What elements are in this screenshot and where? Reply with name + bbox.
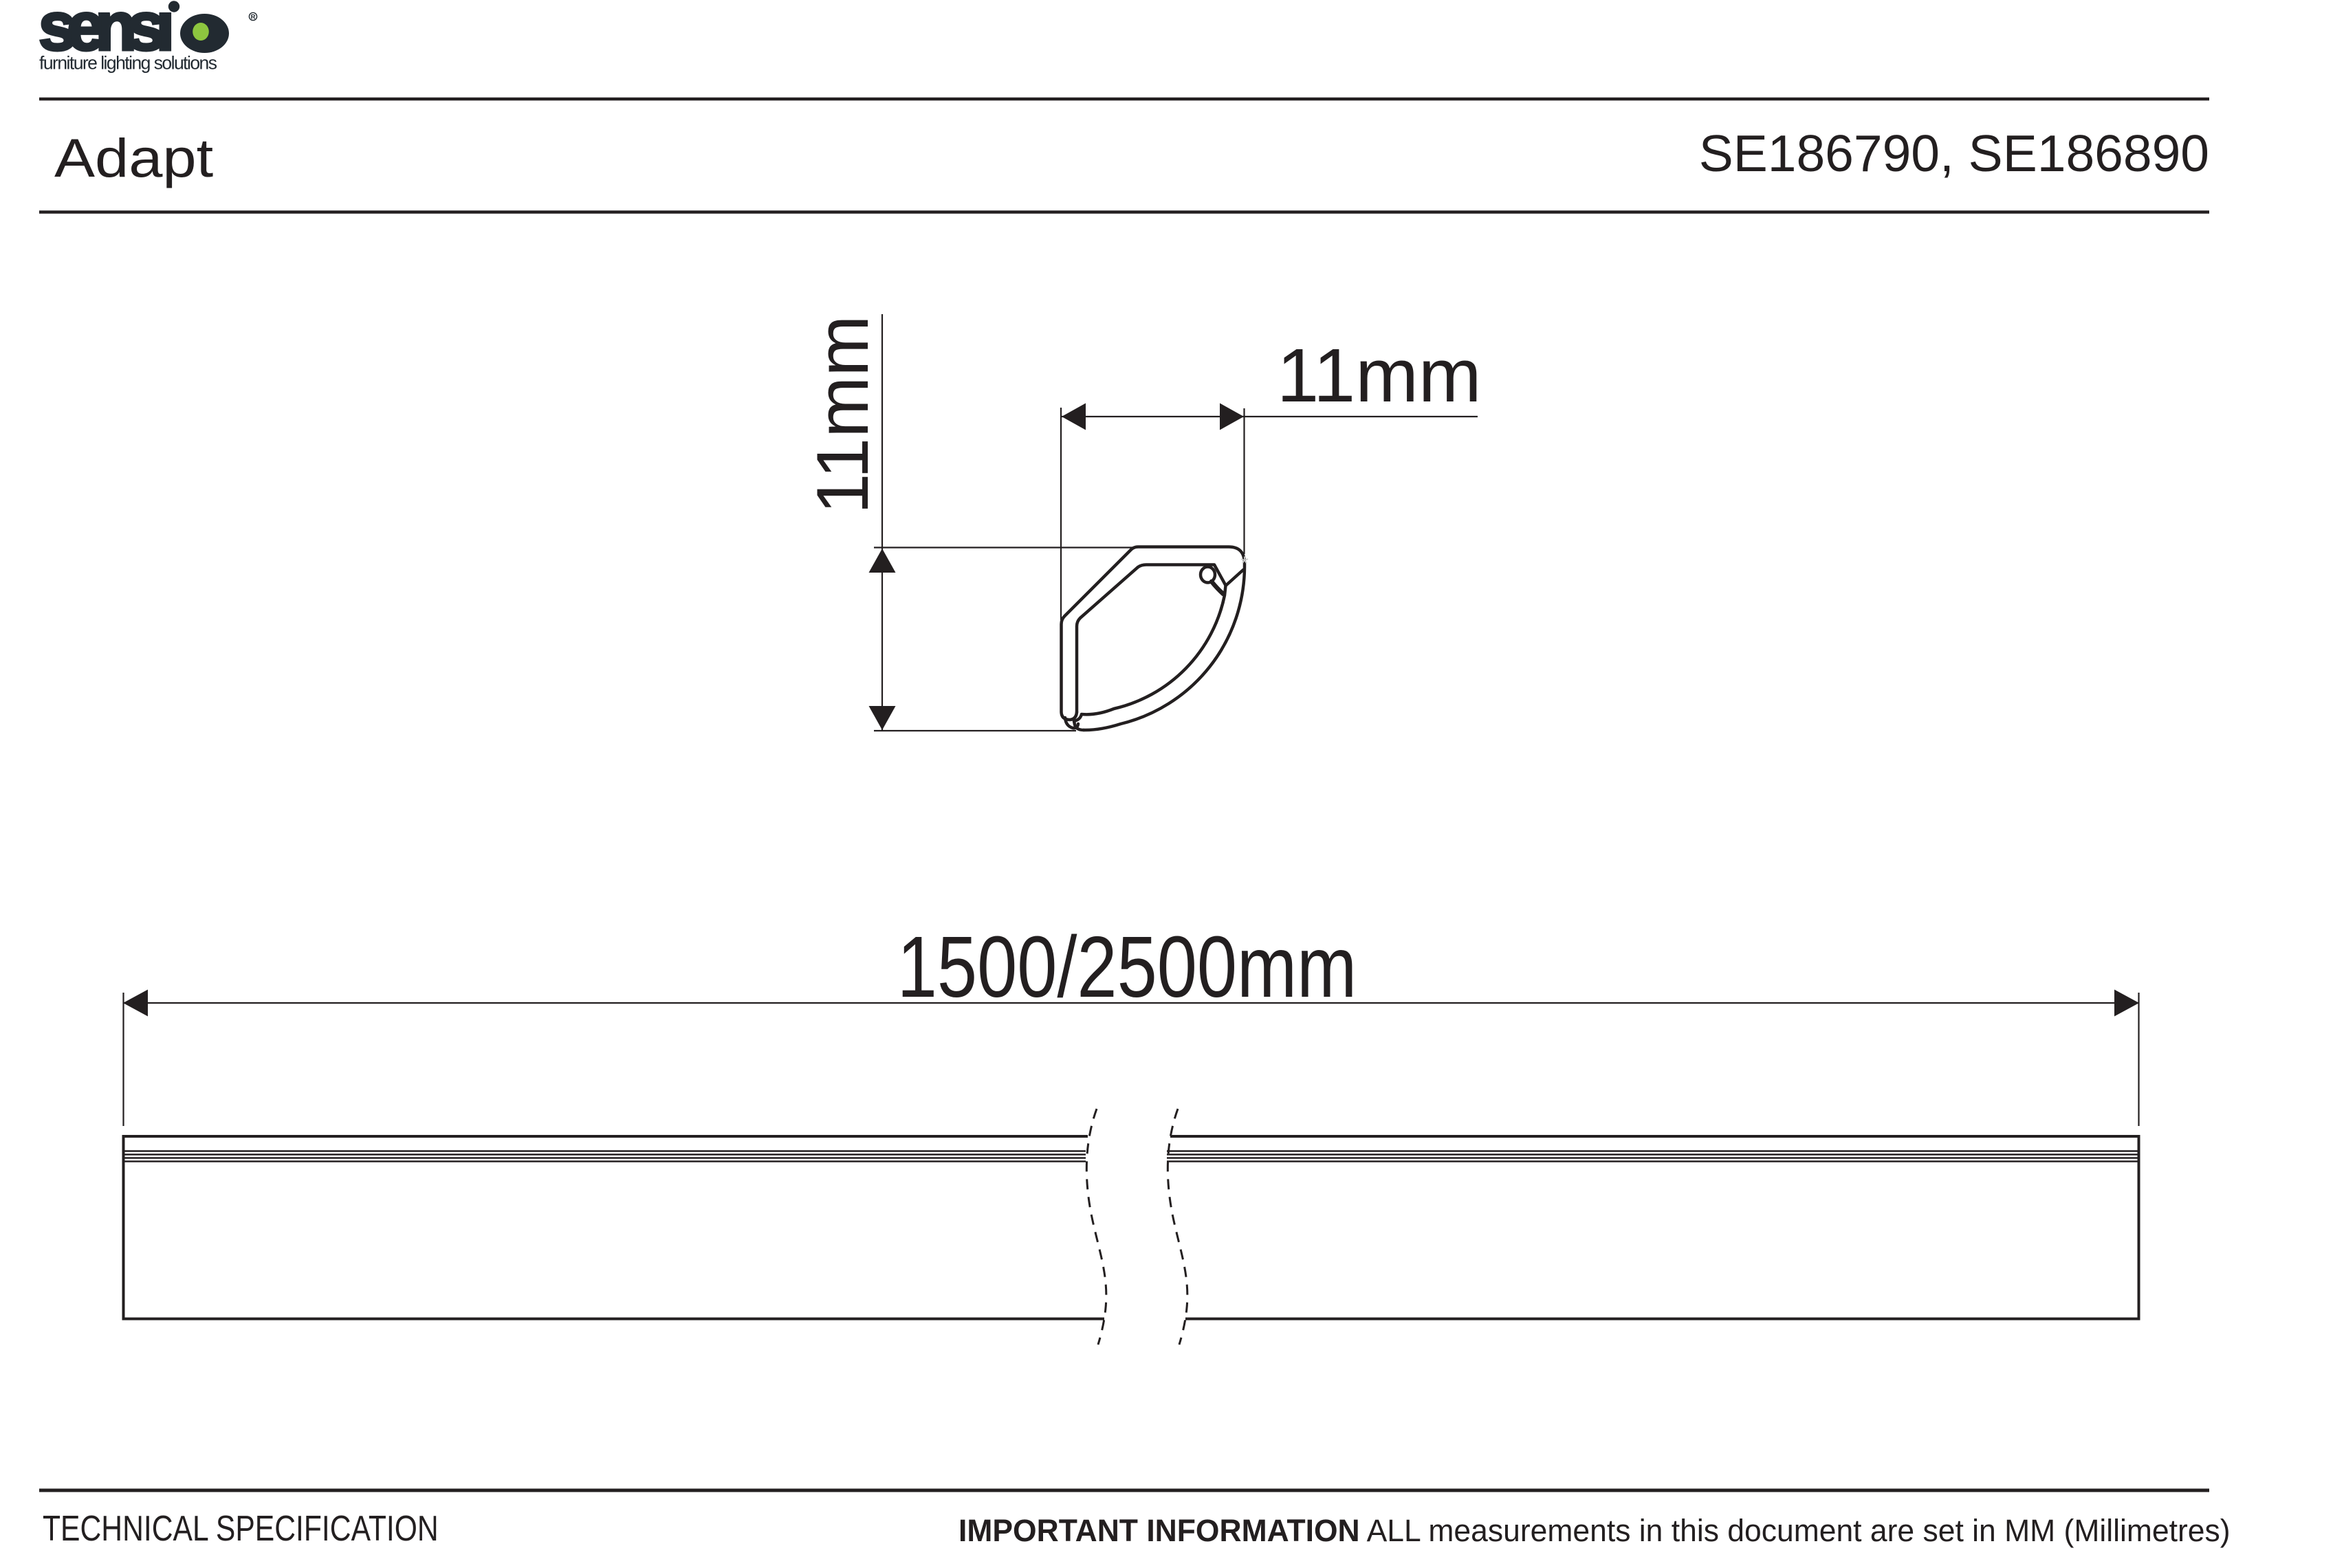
- svg-text:1500/2500mm: 1500/2500mm: [897, 918, 1357, 1015]
- svg-text:11mm: 11mm: [1277, 333, 1481, 418]
- svg-text:*: *: [1240, 553, 1249, 575]
- svg-text:11mm: 11mm: [801, 316, 884, 514]
